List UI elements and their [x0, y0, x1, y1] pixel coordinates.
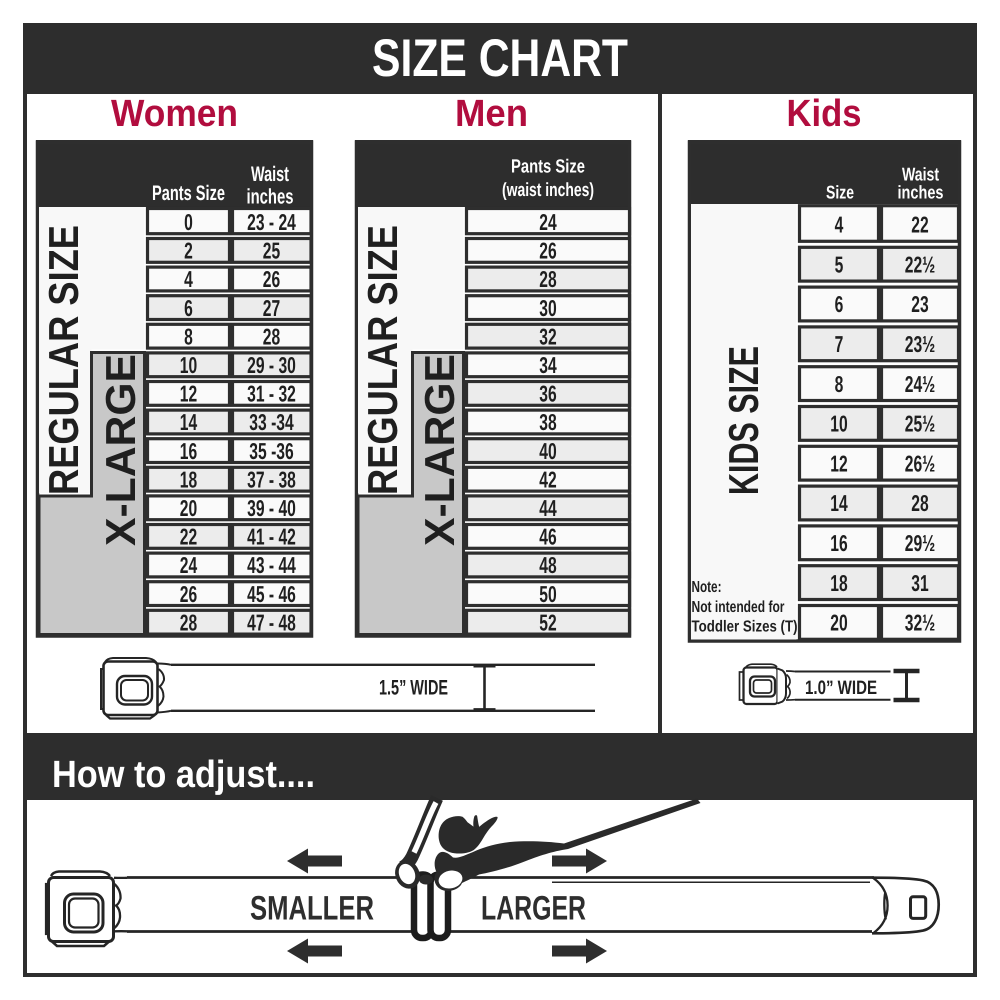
svg-text:X-LARGE: X-LARGE	[416, 354, 463, 546]
svg-text:10: 10	[180, 352, 197, 378]
svg-text:20: 20	[830, 610, 847, 636]
svg-text:8: 8	[184, 323, 193, 349]
svg-text:42: 42	[539, 466, 556, 492]
svg-text:6: 6	[184, 295, 193, 321]
svg-text:27: 27	[263, 295, 280, 321]
svg-text:inches: inches	[898, 182, 944, 203]
svg-text:46: 46	[539, 524, 556, 550]
svg-text:14: 14	[180, 409, 198, 435]
svg-text:33 -34: 33 -34	[249, 409, 294, 435]
svg-text:16: 16	[180, 438, 197, 464]
svg-text:Pants Size: Pants Size	[152, 182, 225, 205]
svg-text:12: 12	[180, 381, 197, 407]
svg-text:26: 26	[180, 581, 197, 607]
svg-text:16: 16	[830, 530, 847, 556]
svg-text:43 - 44: 43 - 44	[247, 552, 296, 578]
svg-text:12: 12	[830, 450, 847, 476]
svg-text:SIZE CHART: SIZE CHART	[372, 29, 628, 88]
svg-text:29½: 29½	[905, 530, 936, 556]
svg-text:26: 26	[539, 238, 556, 264]
svg-text:How to adjust....: How to adjust....	[52, 754, 315, 796]
svg-text:47 - 48: 47 - 48	[247, 609, 296, 635]
svg-text:23 - 24: 23 - 24	[247, 209, 296, 235]
svg-text:29 - 30: 29 - 30	[247, 352, 296, 378]
svg-text:18: 18	[830, 570, 848, 596]
svg-text:45 - 46: 45 - 46	[247, 581, 296, 607]
svg-text:Women: Women	[111, 93, 238, 135]
svg-text:38: 38	[539, 409, 557, 435]
svg-text:22: 22	[911, 212, 928, 238]
svg-text:50: 50	[539, 581, 556, 607]
svg-text:26: 26	[263, 266, 280, 292]
svg-text:Not intended for: Not intended for	[692, 599, 785, 616]
svg-text:23½: 23½	[905, 331, 936, 357]
svg-text:8: 8	[835, 371, 844, 397]
svg-text:6: 6	[835, 291, 844, 317]
svg-text:28: 28	[263, 323, 281, 349]
svg-text:25½: 25½	[905, 411, 936, 437]
svg-text:20: 20	[180, 495, 197, 521]
svg-text:KIDS SIZE: KIDS SIZE	[720, 346, 767, 495]
svg-text:inches: inches	[247, 186, 294, 209]
svg-text:Size: Size	[826, 182, 854, 203]
svg-text:28: 28	[911, 490, 929, 516]
svg-text:22½: 22½	[905, 251, 936, 277]
svg-text:REGULAR SIZE: REGULAR SIZE	[40, 225, 87, 495]
svg-text:30: 30	[539, 295, 556, 321]
svg-text:4: 4	[184, 266, 193, 292]
svg-text:32: 32	[539, 323, 556, 349]
svg-text:31: 31	[911, 570, 929, 596]
svg-text:1.0” WIDE: 1.0” WIDE	[805, 677, 877, 699]
svg-text:Waist: Waist	[251, 163, 289, 186]
svg-text:24: 24	[180, 552, 198, 578]
svg-text:35 -36: 35 -36	[249, 438, 293, 464]
svg-text:36: 36	[539, 381, 556, 407]
svg-text:39 - 40: 39 - 40	[247, 495, 296, 521]
svg-text:Pants Size: Pants Size	[511, 157, 585, 178]
svg-text:Men: Men	[455, 93, 528, 135]
svg-text:23: 23	[911, 291, 928, 317]
svg-text:26½: 26½	[905, 450, 936, 476]
svg-text:31 - 32: 31 - 32	[247, 381, 296, 407]
svg-text:40: 40	[539, 438, 556, 464]
svg-text:2: 2	[184, 238, 193, 264]
svg-text:14: 14	[830, 490, 848, 516]
svg-text:Toddler Sizes (T): Toddler Sizes (T)	[692, 619, 798, 636]
svg-text:10: 10	[830, 411, 847, 437]
svg-text:LARGER: LARGER	[481, 890, 586, 928]
svg-text:37 - 38: 37 - 38	[247, 466, 296, 492]
svg-text:7: 7	[835, 331, 844, 357]
svg-text:4: 4	[835, 212, 844, 238]
svg-text:22: 22	[180, 524, 197, 550]
svg-text:Kids: Kids	[787, 93, 862, 135]
svg-text:25: 25	[263, 238, 281, 264]
svg-text:52: 52	[539, 609, 556, 635]
svg-text:REGULAR SIZE: REGULAR SIZE	[359, 225, 406, 495]
svg-text:18: 18	[180, 466, 198, 492]
svg-text:Note:: Note:	[692, 579, 722, 596]
svg-text:48: 48	[539, 552, 557, 578]
svg-text:0: 0	[184, 209, 193, 235]
svg-text:SMALLER: SMALLER	[250, 890, 374, 928]
svg-text:24: 24	[539, 209, 557, 235]
svg-text:5: 5	[835, 251, 844, 277]
svg-text:1.5” WIDE: 1.5” WIDE	[379, 677, 448, 700]
svg-text:24½: 24½	[905, 371, 936, 397]
svg-text:28: 28	[180, 609, 198, 635]
svg-text:(waist inches): (waist inches)	[502, 180, 594, 201]
svg-text:32½: 32½	[905, 610, 936, 636]
svg-text:28: 28	[539, 266, 557, 292]
svg-text:44: 44	[539, 495, 557, 521]
svg-text:34: 34	[539, 352, 557, 378]
svg-text:X-LARGE: X-LARGE	[97, 354, 144, 546]
svg-text:41 - 42: 41 - 42	[247, 524, 296, 550]
